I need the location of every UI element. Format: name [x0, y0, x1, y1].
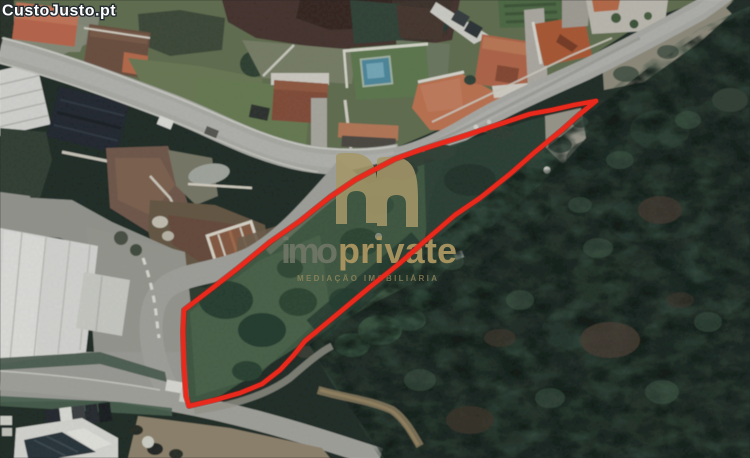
svg-text:MEDIAÇÃO IMOBILIÁRIA: MEDIAÇÃO IMOBILIÁRIA — [297, 274, 440, 283]
svg-text:CustoJusto.pt: CustoJusto.pt — [2, 3, 116, 20]
svg-text:imo: imo — [281, 230, 338, 271]
